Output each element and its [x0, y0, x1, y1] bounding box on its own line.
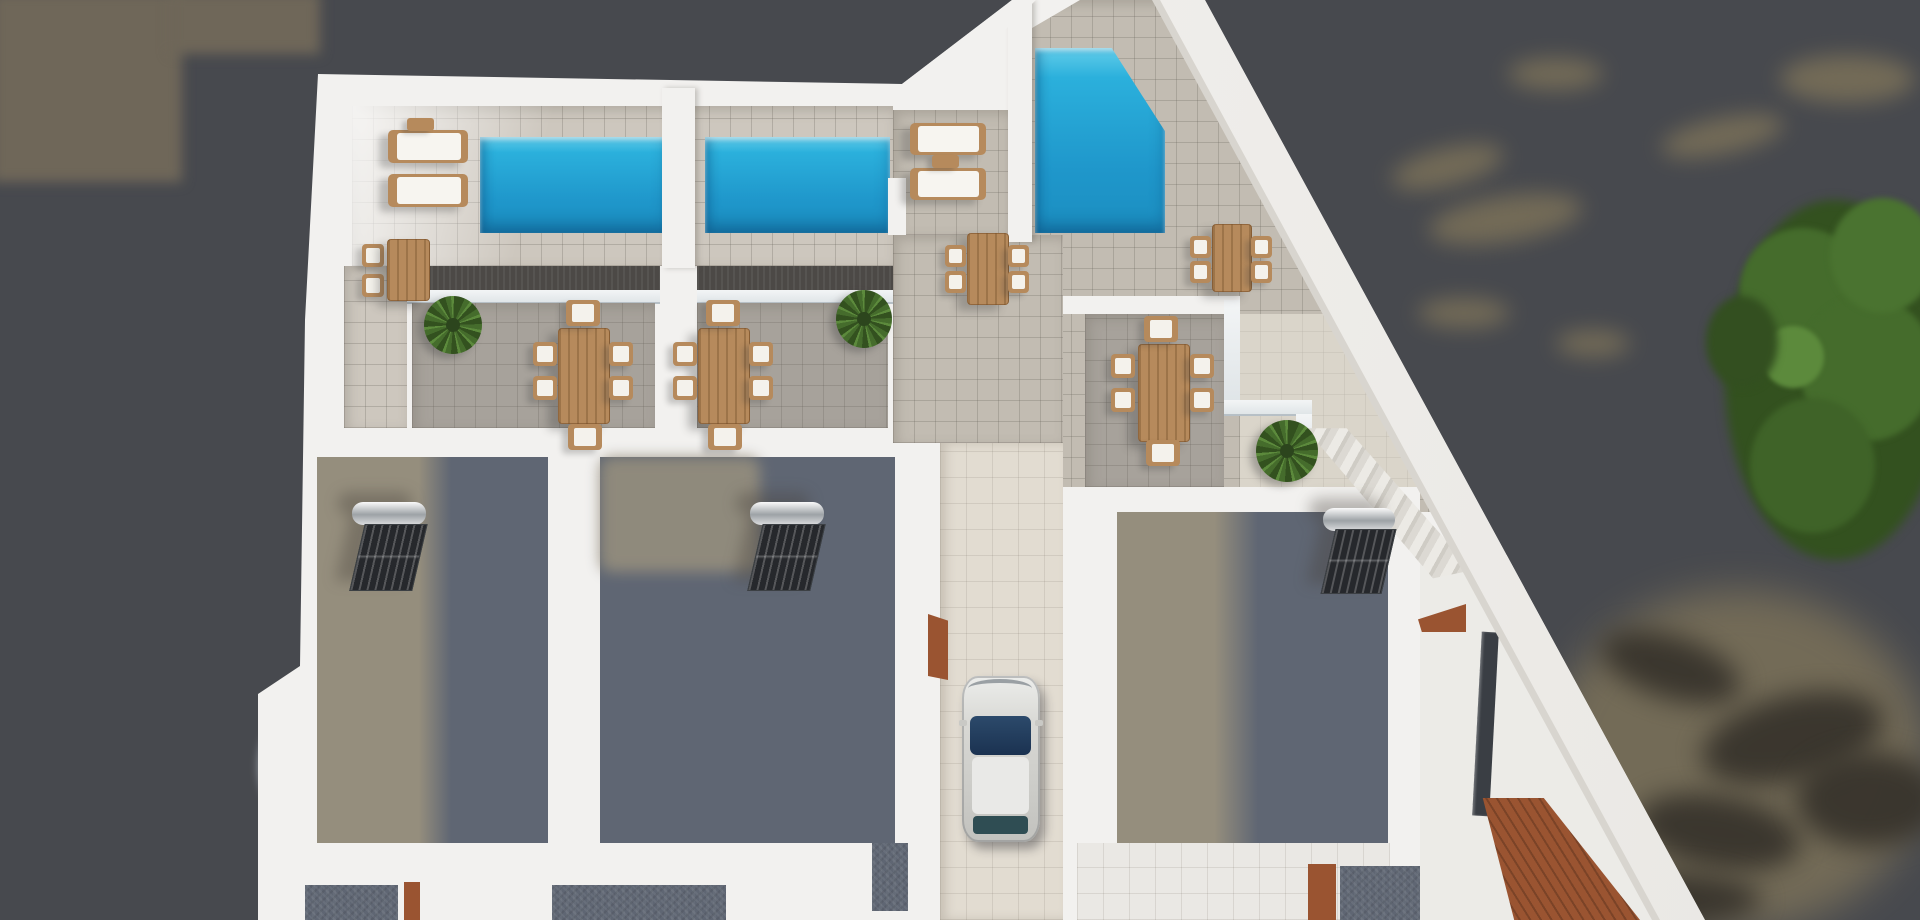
- chair: [1190, 236, 1211, 258]
- table-wood: [558, 328, 610, 424]
- table-wood: [387, 239, 430, 301]
- chair: [566, 300, 600, 326]
- chair: [945, 271, 966, 293]
- table-wood: [967, 233, 1009, 305]
- chair: [749, 342, 773, 366]
- chair: [609, 342, 633, 366]
- chair: [673, 342, 697, 366]
- tree-shadow: [1556, 330, 1630, 357]
- car-rear-window: [973, 816, 1028, 834]
- chair: [1008, 271, 1029, 293]
- chair: [362, 244, 384, 267]
- plant: [1256, 420, 1318, 482]
- side-table: [407, 118, 434, 131]
- chair: [673, 376, 697, 400]
- car-mirror-left: [959, 720, 967, 726]
- tree-shadow: [1780, 55, 1915, 103]
- tree-canopy: [1706, 296, 1778, 388]
- chair: [1111, 388, 1135, 412]
- solar-heater: [352, 502, 426, 588]
- chair: [533, 342, 557, 366]
- chair: [1190, 388, 1214, 412]
- side-table: [932, 155, 959, 168]
- chair: [1190, 354, 1214, 378]
- car: [962, 676, 1040, 842]
- chair: [1146, 440, 1180, 466]
- chair: [1251, 236, 1272, 258]
- chair: [1008, 245, 1029, 267]
- table-wood: [698, 328, 750, 424]
- solar-heater: [1323, 508, 1395, 592]
- chair: [706, 300, 740, 326]
- chair: [1251, 261, 1272, 283]
- sunlit-ground-strip: [170, 0, 320, 54]
- chair: [533, 376, 557, 400]
- car-mirror-right: [1035, 720, 1043, 726]
- table-wood: [1138, 344, 1190, 442]
- plant: [836, 290, 892, 348]
- lounger: [388, 130, 468, 163]
- aerial-render: [0, 0, 1920, 920]
- car-windshield: [970, 716, 1031, 755]
- solar-heater: [750, 502, 824, 588]
- tree-shadow: [1425, 184, 1585, 254]
- chair: [362, 274, 384, 297]
- tree-canopy: [1750, 398, 1875, 533]
- chair: [708, 424, 742, 450]
- sunlit-ground-patch: [0, 0, 182, 182]
- chair: [568, 424, 602, 450]
- lounger: [910, 123, 986, 155]
- table-wood: [1212, 224, 1252, 292]
- tree-shadow: [1508, 58, 1603, 90]
- plant: [424, 296, 482, 354]
- chair: [1111, 354, 1135, 378]
- tree-shadow: [1387, 135, 1508, 200]
- chair: [1144, 316, 1178, 342]
- car-roof: [972, 757, 1029, 814]
- chair: [609, 376, 633, 400]
- lounger: [910, 168, 986, 200]
- chair: [749, 376, 773, 400]
- chair: [945, 245, 966, 267]
- tree-shadow: [1658, 105, 1788, 166]
- chair: [1190, 261, 1211, 283]
- lounger: [388, 174, 468, 207]
- tree-shadow: [1418, 298, 1510, 328]
- car-hood-trim: [968, 679, 1032, 698]
